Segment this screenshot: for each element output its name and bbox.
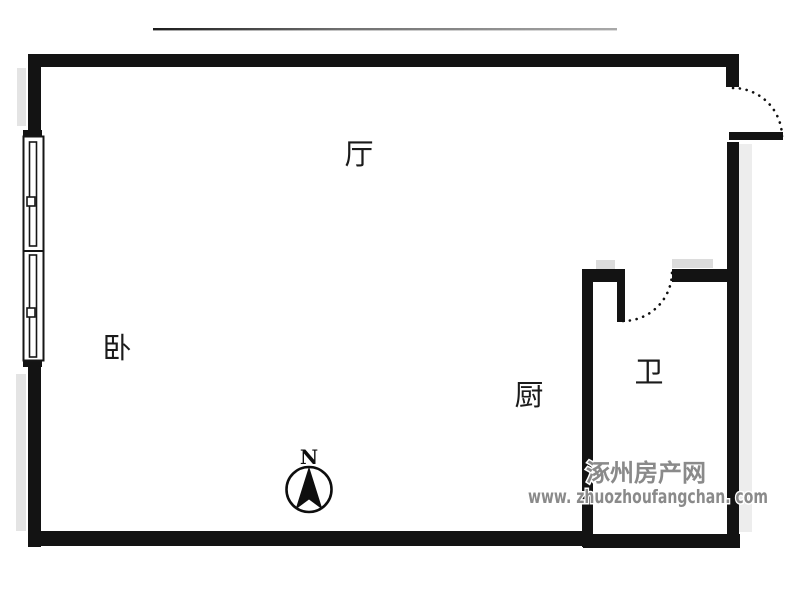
- floorplan-canvas: 厅 卧 厨 卫 N 涿州房产网 www. zhuozhoufangchan. c…: [0, 0, 800, 600]
- entry-door-leaf: [729, 132, 783, 140]
- wall-bath-top-left: [582, 269, 623, 282]
- shadow-right-wall: [739, 144, 752, 532]
- wall-left-upper: [28, 54, 41, 134]
- room-label-kitchen: 厨: [514, 378, 543, 412]
- room-label-bedroom: 卧: [102, 331, 131, 365]
- bathroom-door-swing-arc: [623, 272, 672, 321]
- dimension-line: [153, 28, 617, 30]
- bathroom-door: [617, 269, 672, 322]
- watermark-site-url: www. zhuozhoufangchan. com: [528, 486, 768, 508]
- window-handle-top: [27, 197, 35, 206]
- room-label-living: 厅: [344, 137, 373, 171]
- window-left: [23, 130, 44, 367]
- wall-bottom-left: [28, 531, 588, 546]
- shadow-left-upper: [17, 68, 26, 126]
- compass-north-label: N: [300, 445, 318, 469]
- window-handle-bottom: [27, 308, 35, 317]
- wall-bottom-right: [583, 534, 740, 548]
- bathroom-door-leaf: [617, 269, 625, 322]
- entry-door: [729, 88, 783, 140]
- window-sash-top: [30, 142, 37, 246]
- compass: N: [287, 445, 332, 512]
- wall-top: [28, 54, 738, 67]
- shadow-left-lower: [16, 374, 26, 531]
- window-sash-bottom: [30, 255, 37, 357]
- wall-bath-top-right: [672, 269, 739, 282]
- shadow-bath-wall-right: [672, 259, 713, 268]
- watermark-site-name: 涿州房产网: [586, 459, 706, 487]
- entry-door-swing-arc: [733, 88, 782, 137]
- floorplan-image: 厅 卧 厨 卫 N 涿州房产网 www. zhuozhoufangchan. c…: [0, 0, 800, 600]
- room-label-bathroom: 卫: [634, 355, 663, 389]
- shadow-bath-wall-left: [596, 260, 615, 269]
- compass-needle-icon: [296, 467, 323, 510]
- wall-left-lower: [28, 366, 41, 547]
- window-cap-top: [23, 130, 42, 136]
- wall-top-right-stub: [726, 54, 739, 87]
